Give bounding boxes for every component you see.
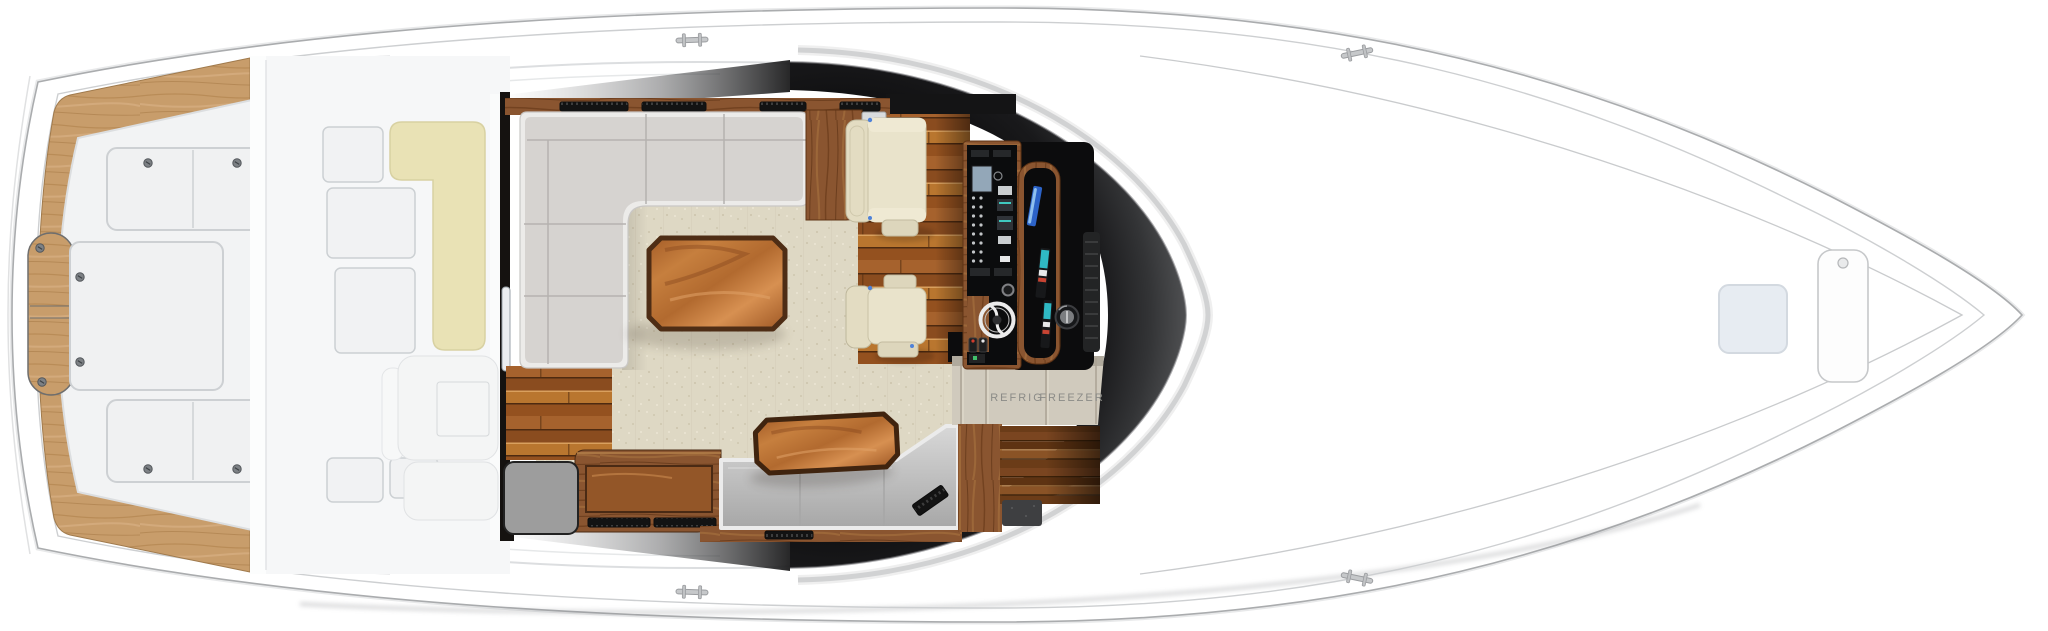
galley-teak-cabinet (958, 424, 1002, 532)
air-vent (760, 102, 806, 111)
sideboard (575, 450, 721, 532)
vent-grille (765, 531, 813, 539)
hatch-latch (1838, 258, 1848, 268)
door-screw-bottom (38, 378, 46, 386)
cockpit (28, 58, 280, 572)
mezzanine (250, 56, 510, 574)
freezer-label: FREEZER (1039, 392, 1104, 404)
foredeck-hatch-square (1719, 285, 1787, 353)
door-screw-top (36, 244, 44, 252)
bridge-vent (1083, 232, 1100, 352)
vent-grille (588, 518, 650, 527)
helm-chair-forward (846, 118, 926, 236)
transom-door (28, 233, 74, 395)
deck-plan-svg: REFRIG FREEZER (0, 0, 2048, 631)
aft-table (747, 413, 899, 490)
air-vent (560, 102, 628, 111)
steering-wheel (981, 304, 1014, 337)
compass (1056, 306, 1079, 329)
air-vent (642, 102, 706, 111)
companionway-step (504, 462, 578, 534)
vent-grille (654, 518, 716, 527)
coffee-table (626, 238, 786, 350)
helm-knob (1003, 285, 1014, 296)
salon-door-handle (502, 287, 510, 371)
cockpit-hatch-center (70, 242, 223, 390)
helm-display (972, 166, 992, 192)
foredeck-hatch-long (1818, 250, 1868, 382)
helm-console (963, 141, 1100, 370)
yacht-deck-plan: REFRIG FREEZER (0, 0, 2048, 631)
galley-mat (1002, 500, 1042, 526)
helm-chair-aft (846, 275, 926, 357)
salon-wood-floor (506, 366, 612, 460)
refrig-label: REFRIG (990, 392, 1044, 404)
electronics-pod (1018, 162, 1060, 364)
